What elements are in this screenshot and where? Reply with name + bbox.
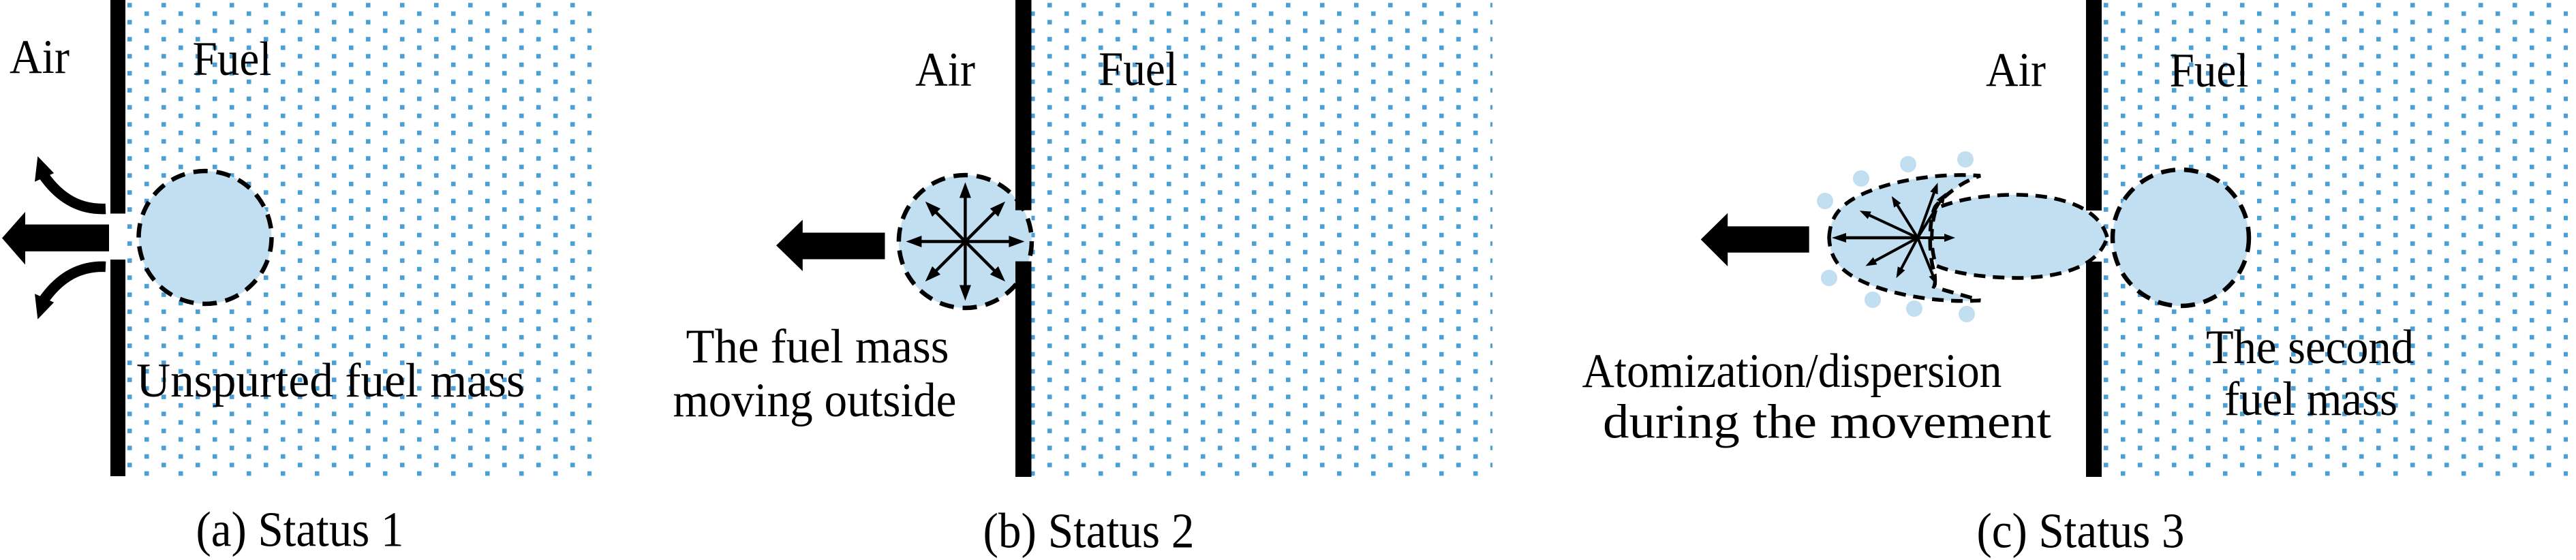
svg-text:Air: Air xyxy=(10,31,70,84)
svg-text:The fuel mass: The fuel mass xyxy=(686,320,949,373)
svg-text:(c) Status 3: (c) Status 3 xyxy=(1977,503,2185,559)
svg-text:Air: Air xyxy=(915,44,975,97)
svg-text:The second: The second xyxy=(2206,321,2414,374)
svg-text:fuel mass: fuel mass xyxy=(2224,373,2397,426)
svg-text:during the movement: during the movement xyxy=(1603,396,2051,449)
svg-text:moving outside: moving outside xyxy=(673,374,957,427)
svg-text:Unspurted fuel mass: Unspurted fuel mass xyxy=(136,354,525,407)
svg-text:Air: Air xyxy=(1986,44,2046,97)
svg-text:Atomization/dispersion: Atomization/dispersion xyxy=(1582,345,2002,398)
svg-text:Fuel: Fuel xyxy=(1099,43,1178,96)
svg-text:(a) Status 1: (a) Status 1 xyxy=(196,502,404,557)
svg-text:Fuel: Fuel xyxy=(2170,44,2249,97)
svg-text:Fuel: Fuel xyxy=(193,33,272,86)
svg-text:(b) Status 2: (b) Status 2 xyxy=(983,503,1195,559)
